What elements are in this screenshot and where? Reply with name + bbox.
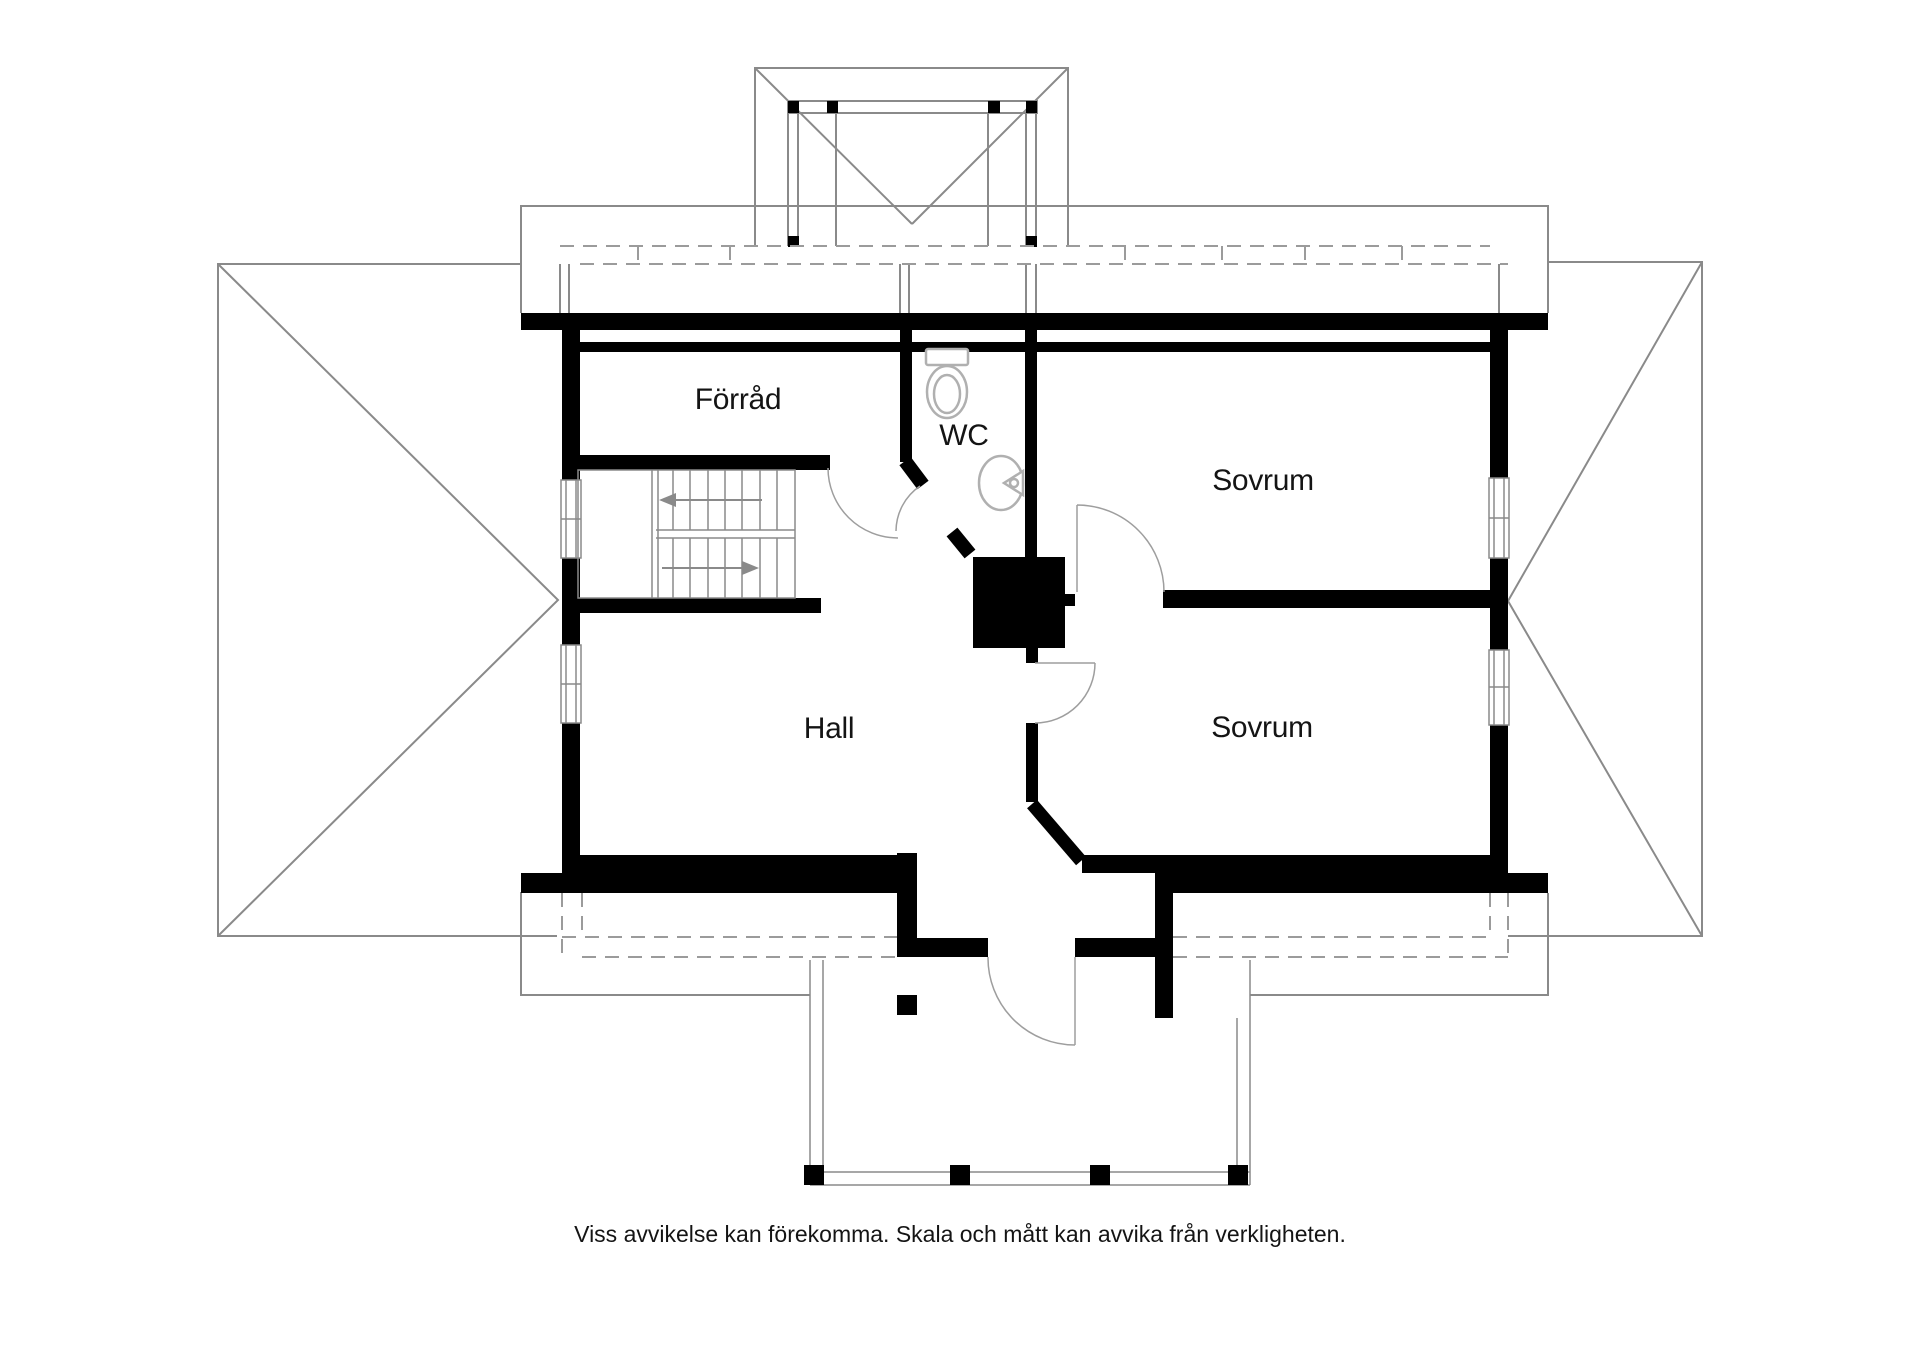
sink-icon xyxy=(979,456,1023,510)
balcony-posts xyxy=(804,995,1248,1185)
dormer-posts xyxy=(788,101,1037,247)
chimney xyxy=(973,557,1065,648)
doors xyxy=(828,468,1164,1045)
door-arc-sovrum-lower xyxy=(1035,663,1095,723)
room-label-forrad: Förråd xyxy=(695,383,782,416)
floorplan-page: Förråd WC Sovrum Sovrum Hall Viss avvike… xyxy=(0,0,1920,1357)
door-arc-forrad xyxy=(828,468,898,538)
room-label-sovrum-lower: Sovrum xyxy=(1211,711,1313,744)
room-label-sovrum-upper: Sovrum xyxy=(1212,464,1314,497)
room-label-hall: Hall xyxy=(804,712,854,745)
door-arc-balcony xyxy=(988,957,1075,1045)
floorplan-drawing: Förråd WC Sovrum Sovrum Hall Viss avvike… xyxy=(0,0,1920,1357)
balcony xyxy=(804,960,1250,1185)
toilet-icon xyxy=(926,349,968,418)
window-icon xyxy=(561,645,581,723)
disclaimer-text: Viss avvikelse kan förekomma. Skala och … xyxy=(574,1221,1346,1247)
stairs xyxy=(578,470,795,598)
window-icon xyxy=(1489,478,1509,558)
door-arc-sovrum-upper xyxy=(1077,505,1164,592)
room-label-wc: WC xyxy=(939,419,988,452)
window-icon xyxy=(1489,650,1509,725)
door-arc-wc xyxy=(896,486,920,531)
dormer-structure xyxy=(755,68,1068,313)
